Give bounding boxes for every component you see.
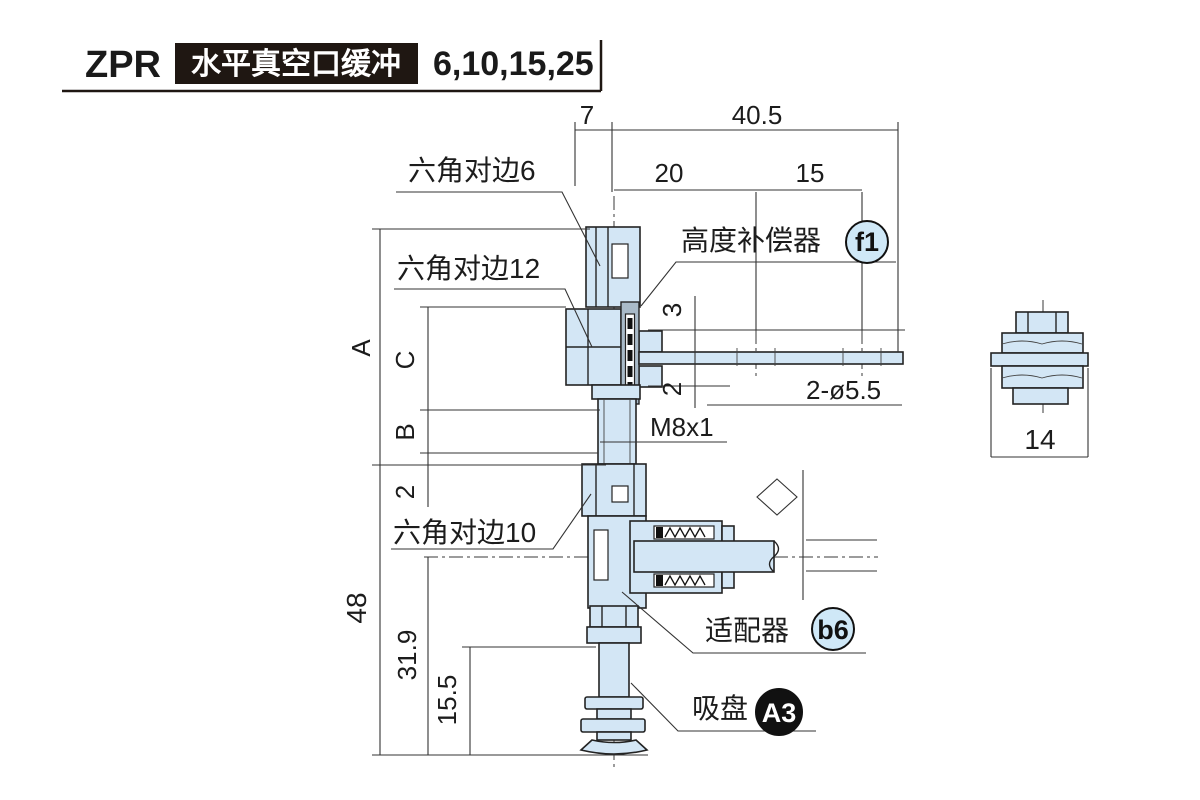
nut-tab-upper: [639, 331, 662, 352]
adapter-ring: [587, 627, 641, 643]
slot-mark: [628, 350, 633, 361]
dim-C: C: [390, 351, 420, 370]
technical-drawing-canvas: ZPR 水平真空口缓冲 6,10,15,25: [0, 0, 1200, 800]
adapter-hex: [590, 606, 638, 627]
port-tube: [634, 541, 774, 572]
dim-20: 20: [655, 158, 684, 188]
header: ZPR 水平真空口缓冲 6,10,15,25: [62, 40, 601, 91]
dim-7: 7: [580, 100, 594, 130]
side-view-part: [991, 312, 1088, 404]
seal-block: [656, 527, 663, 538]
hex6-label: 六角对边6: [408, 155, 536, 186]
dim-40-5: 40.5: [732, 100, 783, 130]
top-rod-notch: [612, 244, 628, 278]
dim-2-lower: 2: [390, 485, 420, 499]
b6-badge-text: b6: [817, 615, 849, 645]
size-list: 6,10,15,25: [433, 45, 594, 83]
dim-A: A: [346, 339, 376, 357]
side-hex-lower: [1002, 366, 1083, 388]
mounting-arm: [639, 352, 903, 364]
seal-block: [656, 575, 663, 586]
compensator-label: 高度补偿器: [681, 225, 821, 256]
main-view-part: [566, 227, 903, 754]
hex12-label: 六角对边12: [397, 253, 540, 284]
callout-labels: 六角对边6 六角对边12 高度补偿器 f1 六角对边10 适配器 b6 吸盘 A…: [391, 155, 896, 735]
page-title: 水平真空口缓冲: [191, 48, 401, 81]
side-flange: [991, 353, 1088, 366]
leader-line: [394, 289, 592, 347]
dim-14: 14: [1024, 424, 1055, 455]
bellows-neck-1: [597, 709, 631, 719]
thread-label: M8x1: [650, 412, 714, 442]
rod-collar: [592, 385, 640, 399]
holes-label: 2-ø5.5: [806, 375, 881, 405]
side-hex-bottom-small: [1013, 388, 1068, 404]
pad-stem: [599, 643, 629, 697]
slot-mark: [628, 318, 633, 329]
diamond-symbol: [757, 479, 797, 515]
dimension-lines: 7 40.5 20 15 A C B 2 48 31.9 15.5 3 2: [341, 100, 1088, 755]
dim-31-9: 31.9: [392, 630, 422, 681]
bellows-neck-2: [597, 732, 631, 740]
adapter-label: 适配器: [705, 615, 789, 646]
pad-skirt: [581, 740, 647, 754]
slot-mark: [628, 334, 633, 345]
hex10-label: 六角对边10: [393, 517, 536, 548]
lower-body-slot: [594, 530, 608, 580]
dim-48: 48: [341, 592, 372, 623]
pad-label: 吸盘: [692, 693, 748, 724]
f1-badge-text: f1: [855, 227, 879, 257]
a3-badge-text: A3: [762, 698, 797, 728]
slot-mark: [628, 366, 633, 377]
dim-15: 15: [796, 158, 825, 188]
lower-hex-notch: [612, 486, 628, 502]
bellows-rib-2: [581, 719, 645, 732]
leader-line: [641, 262, 896, 306]
side-hex-upper: [1002, 333, 1083, 353]
dim-3: 3: [657, 303, 687, 317]
side-hex-top-small: [1016, 312, 1068, 333]
series-code: ZPR: [85, 44, 161, 86]
bellows-rib-1: [585, 697, 643, 709]
dim-B: B: [390, 423, 420, 440]
dim-2-upper: 2: [657, 382, 687, 396]
dim-15-5: 15.5: [432, 675, 462, 726]
